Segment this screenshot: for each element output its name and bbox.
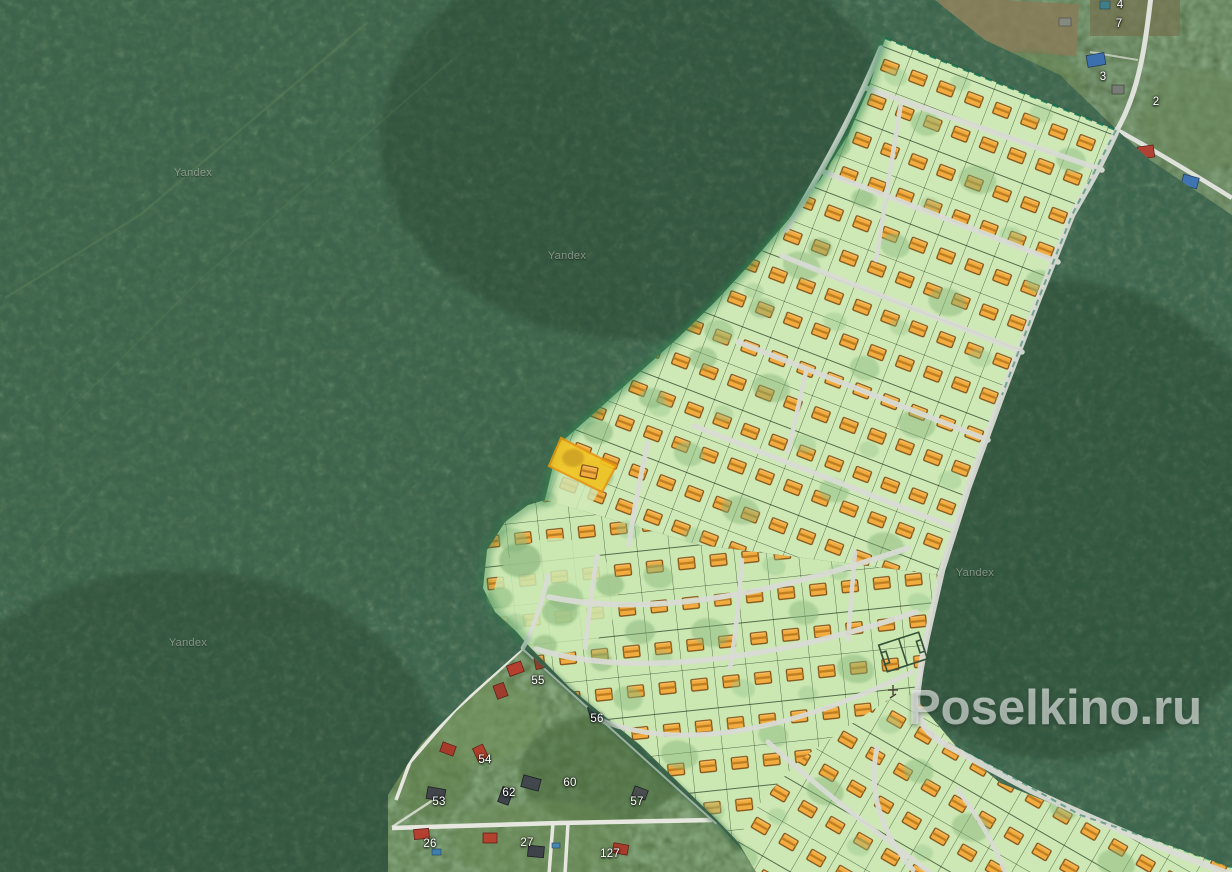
map-canvas[interactable]: Poselkino.ru 4732555654606253572627127Ya… bbox=[0, 0, 1232, 872]
satellite-map-art bbox=[0, 0, 1232, 872]
